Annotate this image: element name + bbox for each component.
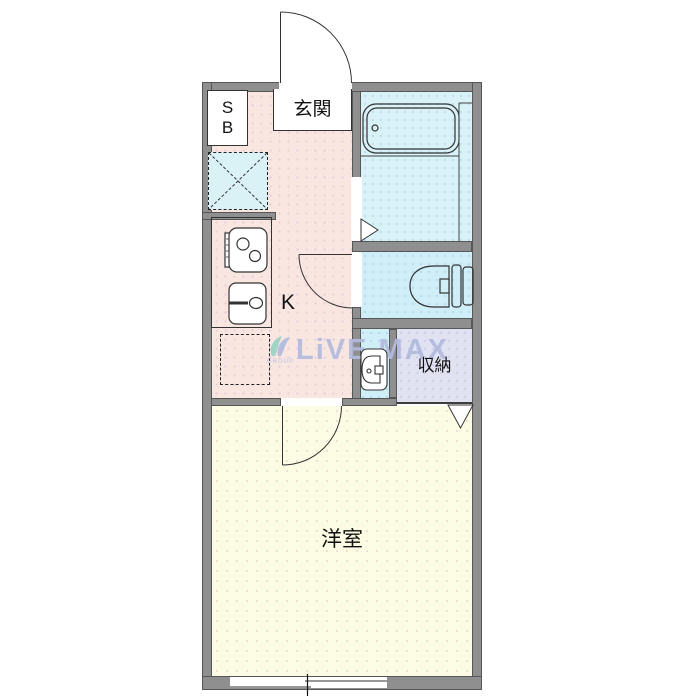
bathtub-icon (363, 104, 459, 153)
western-room-label-text: 洋室 (321, 528, 363, 552)
window-icon (230, 674, 387, 696)
gas-stove-icon (225, 228, 267, 272)
kitchen-label-text: K (281, 291, 295, 314)
storage-label-text: 収納 (418, 356, 452, 376)
toilet-icon (410, 265, 473, 307)
shoe-box: S B (207, 90, 248, 146)
entrance-area: 玄関 (273, 89, 352, 131)
entrance-label: 玄関 (293, 99, 331, 121)
shoe-box-label-s: S (222, 98, 233, 118)
washbasin-icon (361, 349, 387, 390)
western-room-label: 洋室 (292, 526, 392, 554)
laundry-pan-cross (209, 153, 267, 209)
bath-door-icon (361, 219, 378, 241)
kitchen-label: K (281, 291, 295, 315)
shoe-box-label-b: B (222, 118, 233, 138)
kitchen-sink-icon (229, 283, 266, 324)
room-door-icon (283, 406, 342, 465)
entrance-door-icon (281, 12, 352, 83)
floor-plan: S B 玄関 GROUP LiVE MAX (0, 0, 700, 700)
closet-door-icon (448, 405, 473, 428)
storage-label: 収納 (397, 329, 472, 402)
toilet-door-icon (299, 255, 353, 309)
